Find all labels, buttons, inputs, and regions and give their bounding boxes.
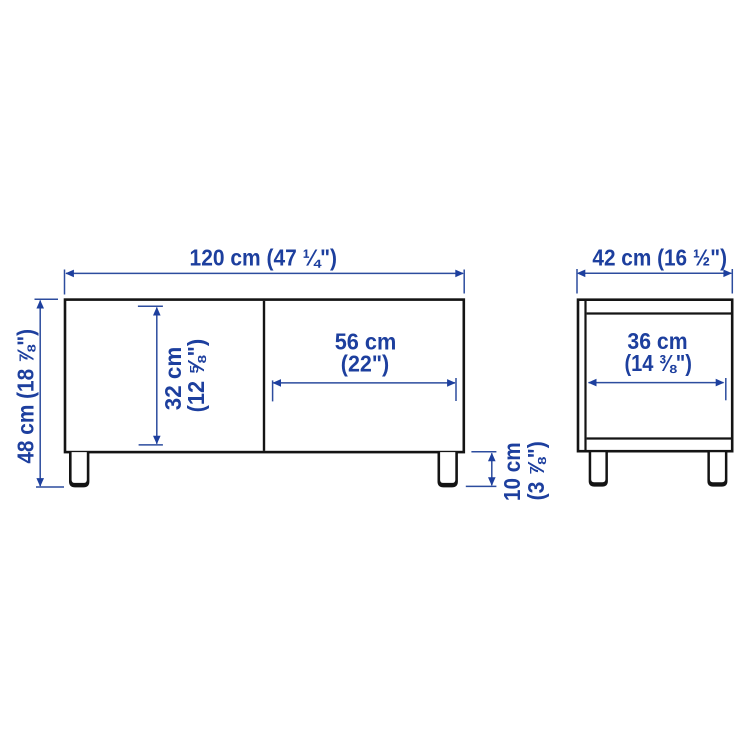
svg-text:48 cm (18 ⅞"): 48 cm (18 ⅞") [12,329,38,464]
svg-text:42 cm (16 ½"): 42 cm (16 ½") [592,245,727,271]
svg-text:(22"): (22") [341,351,389,377]
svg-text:120 cm (47 ¼"): 120 cm (47 ¼") [190,245,338,271]
svg-text:(3 ⅞"): (3 ⅞") [523,441,549,500]
svg-text:10 cm: 10 cm [499,442,525,501]
svg-text:(14 ⅜"): (14 ⅜") [625,350,692,376]
svg-text:(12 ⅝"): (12 ⅝") [183,339,209,413]
